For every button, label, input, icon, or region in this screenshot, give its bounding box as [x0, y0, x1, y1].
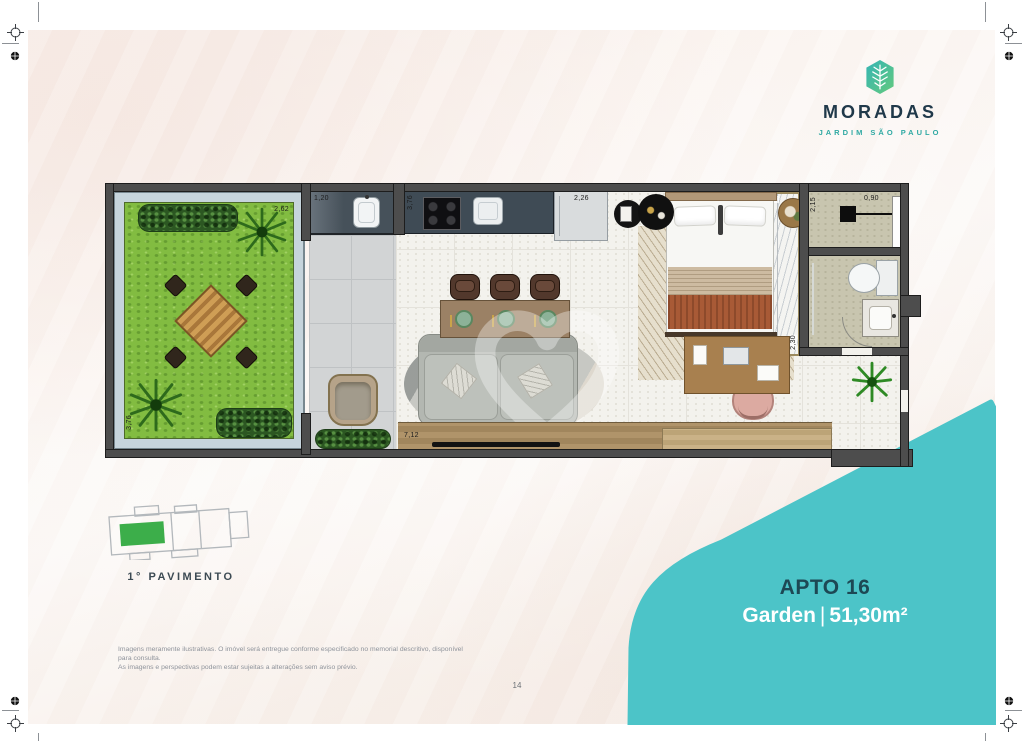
- bar-counter: [440, 300, 570, 338]
- faucet: [892, 314, 896, 318]
- keyplan-unit-highlight: [120, 521, 165, 546]
- brand-tagline: JARDIM SÃO PAULO: [800, 128, 960, 137]
- garden: 2,62 3,76: [113, 191, 305, 450]
- wall: [302, 414, 310, 454]
- brand-logo: MORADAS JARDIM SÃO PAULO: [800, 58, 960, 137]
- laundry-tub: [353, 197, 380, 228]
- bistro-tray: [620, 206, 632, 222]
- garden-bush: [217, 409, 291, 437]
- keyplan-label: 1° PAVIMENTO: [96, 571, 266, 583]
- bed-pillow: [674, 205, 717, 226]
- crop-line: [38, 2, 39, 22]
- unit-separator: |: [816, 604, 829, 627]
- crop-line: [38, 733, 39, 741]
- door-swing-arc: [842, 317, 872, 347]
- registration-dot-icon: [10, 51, 20, 61]
- dim-laundry-width: 1,20: [314, 195, 329, 202]
- disclaimer: Imagens meramente ilustrativas. O imóvel…: [118, 645, 478, 672]
- papers: [693, 345, 707, 365]
- disclaimer-line: Imagens meramente ilustrativas. O imóvel…: [118, 645, 478, 663]
- palm-plant-icon: [127, 376, 185, 434]
- disclaimer-line: As imagens e perspectivas podem estar su…: [118, 663, 478, 672]
- shower-partition-wall: [808, 248, 901, 255]
- unit-area: 51,30m²: [829, 604, 907, 627]
- registration-mark-icon: [1000, 24, 1017, 41]
- dim-shower-depth: 2,15: [810, 197, 817, 212]
- unit-type-area: Garden|51,30m²: [690, 604, 960, 628]
- dim-shower-width: 0,90: [864, 195, 879, 202]
- wall: [106, 184, 113, 457]
- glass-partition: [812, 263, 814, 335]
- garden-grass: 2,62 3,76: [124, 202, 294, 439]
- laundry-counter: 1,20: [309, 191, 396, 235]
- dim-garden-depth: 3,76: [126, 415, 133, 430]
- wall: [394, 184, 404, 234]
- bar-stool: [490, 274, 520, 300]
- registration-mark-icon: [1000, 715, 1017, 732]
- dim-kitchen-depth: 3,76: [407, 195, 414, 210]
- unit-badge: APTO 16 Garden|51,30m²: [690, 576, 960, 628]
- registration-dot-icon: [10, 696, 20, 706]
- armchair: [328, 374, 378, 426]
- place-setting: [539, 310, 557, 328]
- floor-plan: 2,62 3,76 1,20 3,76 2,26: [106, 184, 914, 476]
- wall: [901, 296, 920, 316]
- leaf-logo-icon: [863, 58, 897, 96]
- page-number: 14: [482, 681, 552, 690]
- bed-throw: [718, 205, 723, 235]
- tv: [432, 442, 560, 447]
- bistro-table: [638, 194, 674, 230]
- registration-dot-icon: [1004, 696, 1014, 706]
- bed-quilt: [668, 267, 772, 295]
- bed-blanket: [668, 295, 772, 329]
- crop-line: [2, 43, 19, 44]
- palm-plant-icon: [235, 205, 289, 259]
- bed: [666, 194, 774, 334]
- unit-type: Garden: [742, 604, 816, 627]
- window-opening: [901, 390, 908, 412]
- bed-pillow: [724, 205, 767, 226]
- door-opening: [842, 348, 872, 355]
- toilet-bowl: [848, 263, 880, 293]
- registration-mark-icon: [7, 24, 24, 41]
- laundry-bush: [316, 430, 390, 448]
- crop-line: [985, 733, 986, 741]
- garden-chair: [234, 345, 258, 369]
- crop-line: [1005, 710, 1022, 711]
- garden-chair: [163, 345, 187, 369]
- dim-kitchen-width: 2,26: [574, 195, 589, 202]
- brand-name: MORADAS: [800, 102, 960, 123]
- bar-stool: [450, 274, 480, 300]
- wall: [800, 184, 808, 355]
- keyplan-outline: [96, 498, 266, 560]
- wood-deck: 7,12: [398, 422, 832, 450]
- desk: [684, 336, 790, 394]
- garden-bush: [139, 205, 237, 231]
- faucet: [365, 195, 369, 199]
- papers: [757, 365, 779, 381]
- bathroom-window: [892, 196, 901, 248]
- deck-bench: [662, 428, 832, 451]
- laptop: [723, 347, 749, 365]
- kitchen-sink: [473, 197, 503, 225]
- registration-dot-icon: [1004, 51, 1014, 61]
- keyplan: 1° PAVIMENTO: [96, 498, 266, 583]
- garden-chair: [234, 273, 258, 297]
- place-setting: [455, 310, 473, 328]
- kitchen-counter: [404, 191, 554, 234]
- shower-head: [840, 206, 856, 222]
- wall: [832, 450, 912, 466]
- bar-stool: [530, 274, 560, 300]
- unit-title: APTO 16: [690, 576, 960, 600]
- dim-living-width: 7,12: [404, 432, 419, 439]
- place-setting: [497, 310, 515, 328]
- registration-mark-icon: [7, 715, 24, 732]
- wall: [106, 184, 908, 191]
- crop-line: [1005, 43, 1022, 44]
- bed-headboard: [665, 192, 777, 201]
- garden-chair: [163, 273, 187, 297]
- wall: [106, 450, 840, 457]
- wall: [302, 184, 310, 240]
- crop-line: [985, 2, 986, 22]
- crop-line: [2, 710, 19, 711]
- dim-closet-depth: 2,30: [790, 335, 797, 350]
- bathroom: 2,15 0,90: [808, 191, 901, 348]
- stove: [423, 197, 461, 230]
- garden-table: [174, 284, 248, 358]
- dim-garden-width: 2,62: [274, 206, 289, 213]
- wall: [901, 184, 908, 466]
- bistro-set: [614, 194, 676, 234]
